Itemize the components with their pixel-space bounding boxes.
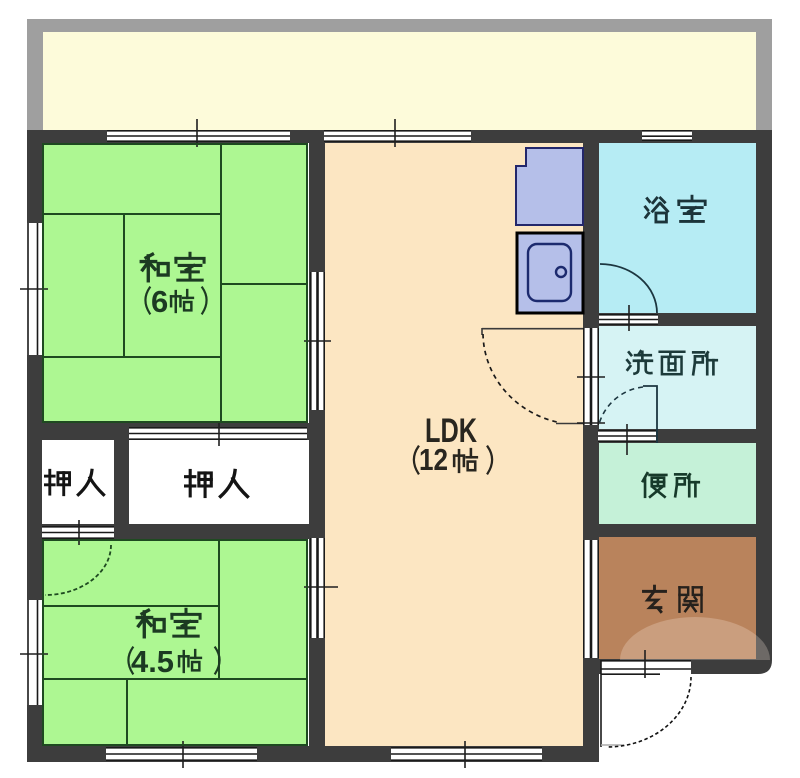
svg-text:6: 6 — [151, 284, 168, 319]
svg-text:4.5: 4.5 — [131, 644, 174, 679]
svg-text:12: 12 — [419, 442, 448, 477]
